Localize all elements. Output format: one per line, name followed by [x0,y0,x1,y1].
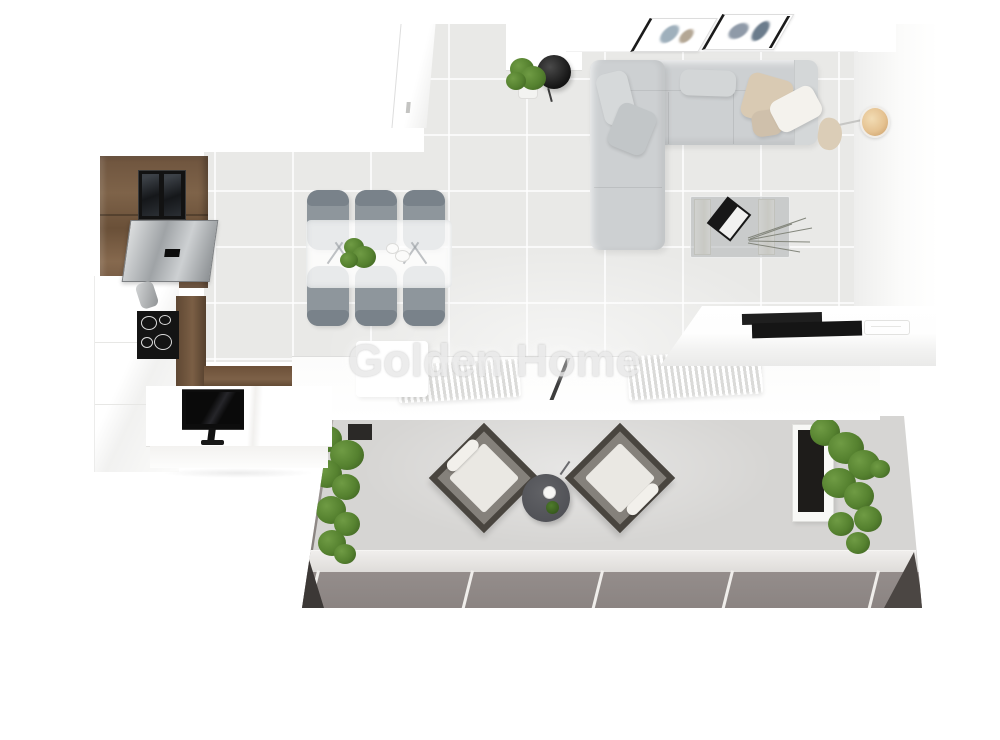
door-handle [406,102,411,113]
burner-ring [141,316,157,330]
dining-table [306,220,452,288]
steel-appliance [122,220,219,282]
balcony-dark-tiles [298,572,924,608]
burner-ring [154,334,172,350]
chair-backrest [403,310,445,326]
chair-backrest [307,190,349,206]
coffee-cup [543,486,556,499]
planter-right-plant [854,506,882,532]
balcony-armchair-left [428,422,532,526]
wood-countertop-horizontal [204,366,292,388]
peninsula-front-face [150,446,328,468]
golden-home-watermark: Golden Home [348,334,668,388]
planter-right-plant [846,532,870,554]
oven-glass-right [164,174,181,216]
induction-cooktop [137,311,179,359]
chair-backrest [355,190,397,206]
planter-right-plant [828,512,854,536]
sofa-seam [733,92,734,144]
right-wall [854,24,938,324]
planter-left-pot [348,424,372,440]
chair-backrest [355,310,397,326]
tile-grout [867,570,880,611]
countertop-tv [182,389,244,430]
chair-backrest [403,190,445,206]
plant-leaf [340,252,358,268]
potted-plant [506,72,526,90]
island-cooktop [752,321,862,339]
planter-right-plant [870,460,890,478]
top-wall-shadow [566,51,858,52]
chair-backrest [307,310,349,326]
oven-glass-left [142,174,159,216]
appliance-display [164,249,180,257]
burner-ring [159,315,171,325]
armchair-frame [429,423,539,533]
floor-lamp-shade [860,106,890,138]
built-in-oven [138,170,186,220]
sofa-seam [668,92,669,144]
frame-art [676,29,696,43]
table-leg [411,242,428,264]
tile-grout [721,570,734,611]
armchair-frame [565,423,675,533]
tile-grout [591,570,604,611]
tile-grout [461,570,474,611]
dried-twigs [742,212,818,258]
wood-countertop-vertical [176,296,206,388]
floorplan-rendering: Golden Home [0,0,1000,740]
frame-art [748,21,774,41]
counter-sink-outline [864,320,910,335]
tv-screen [186,392,240,424]
peninsula-shadow [162,468,314,478]
sofa-seam [594,187,662,188]
throw-pillow [680,69,737,97]
mini-plant [546,501,559,514]
burner-ring [141,337,153,348]
balcony-armchair-right [564,422,668,526]
balcony [298,416,924,608]
planter-left-plant [334,544,356,564]
frame-art [725,23,752,39]
dinner-plate [395,250,410,262]
tv-stand-base [201,440,224,445]
